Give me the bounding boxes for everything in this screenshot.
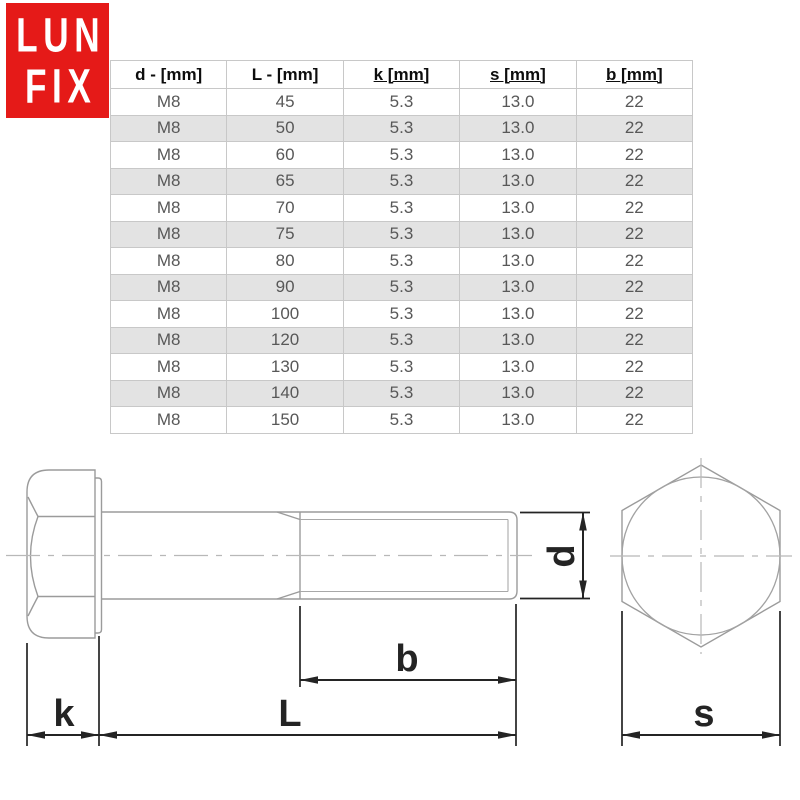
bolt-datasheet-page: LUN FIX d - [mm]L - [mm]k [mm]s [mm]b [m… bbox=[0, 0, 800, 800]
dimension-label-L: L bbox=[278, 693, 301, 735]
head-facet-arc-lower bbox=[28, 597, 38, 617]
dimension-label-d: d bbox=[541, 544, 583, 567]
thread-runout-bottom bbox=[277, 592, 300, 600]
bolt-side-view bbox=[6, 470, 532, 638]
dimensions: k L b s d bbox=[27, 513, 780, 747]
dimension-label-s: s bbox=[693, 693, 714, 735]
head-facet-arc-middle bbox=[31, 517, 39, 597]
technical-drawing: k L b s d bbox=[0, 0, 800, 800]
bolt-head-view bbox=[610, 458, 792, 654]
head-outline bbox=[27, 470, 95, 638]
thread-runout-top bbox=[277, 512, 300, 520]
head-facet-arc-upper bbox=[28, 497, 38, 517]
dimension-label-b: b bbox=[395, 638, 418, 680]
dimension-label-k: k bbox=[53, 693, 75, 735]
